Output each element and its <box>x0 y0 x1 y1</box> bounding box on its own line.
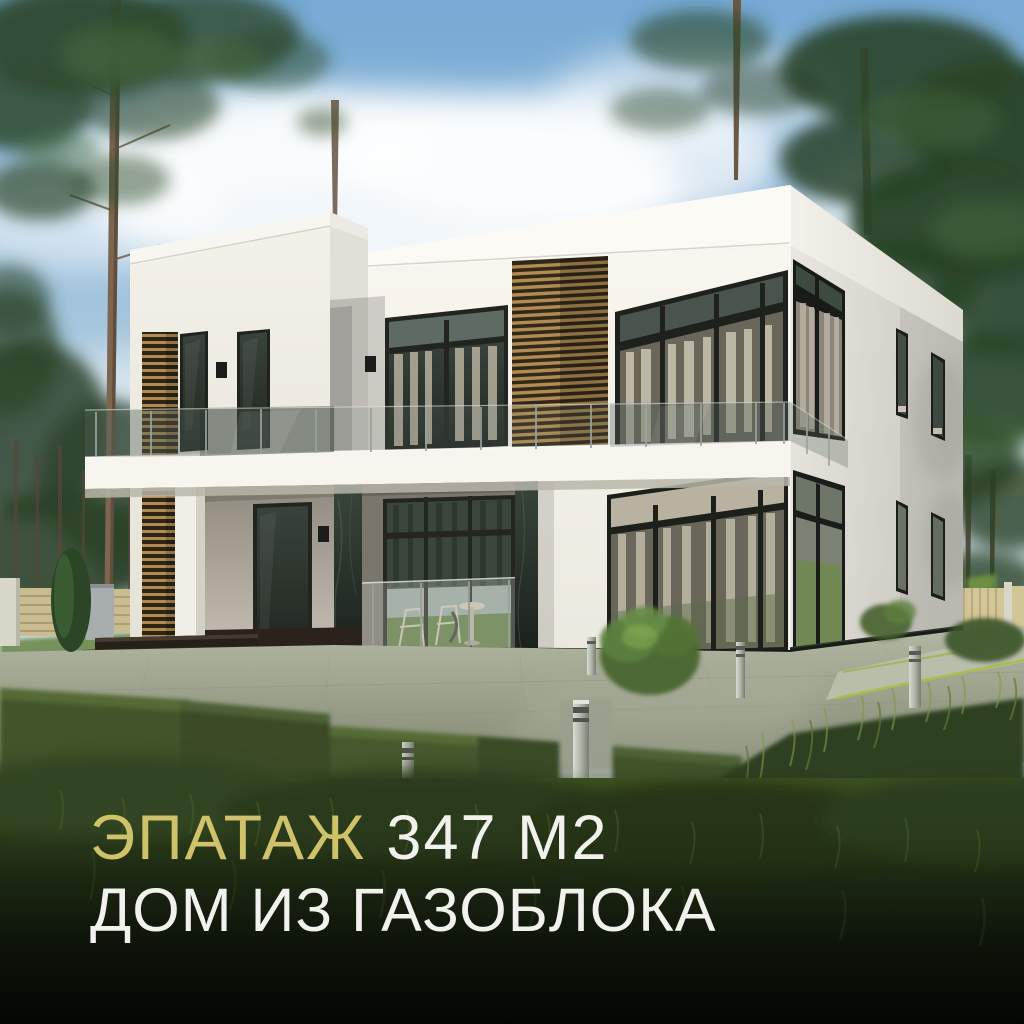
wall-lamp <box>365 356 376 372</box>
project-area: 347 М2 <box>386 803 608 873</box>
wall-lamp <box>318 526 329 542</box>
marble-pier <box>515 476 538 674</box>
project-title: ЭПАТАЖ347 М2 <box>90 806 716 872</box>
caption-overlay: ЭПАТАЖ347 М2 ДОМ ИЗ ГАЗОБЛОКА <box>90 806 716 942</box>
conifer-shrub <box>51 548 91 652</box>
bollard-light <box>587 637 596 675</box>
promo-image: ЭПАТАЖ347 М2 ДОМ ИЗ ГАЗОБЛОКА <box>0 0 1024 1024</box>
porch-column <box>175 485 205 645</box>
bollard-light <box>909 646 921 708</box>
project-subtitle: ДОМ ИЗ ГАЗОБЛОКА <box>90 879 716 942</box>
terrace-railing <box>362 577 533 657</box>
project-name: ЭПАТАЖ <box>90 803 366 873</box>
house <box>58 185 975 689</box>
ground-window-right <box>793 470 845 652</box>
bollard-light <box>736 642 745 698</box>
balcony <box>85 402 848 498</box>
wall-lamp <box>216 362 227 378</box>
bollard-light-tall <box>573 700 589 790</box>
